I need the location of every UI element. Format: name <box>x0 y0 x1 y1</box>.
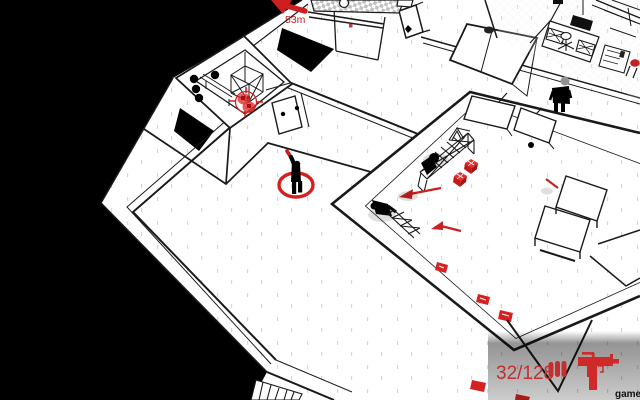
svg-text:53m: 53m <box>285 14 306 26</box>
svg-text:game: game <box>615 389 640 400</box>
svg-text:32/128: 32/128 <box>496 363 554 384</box>
